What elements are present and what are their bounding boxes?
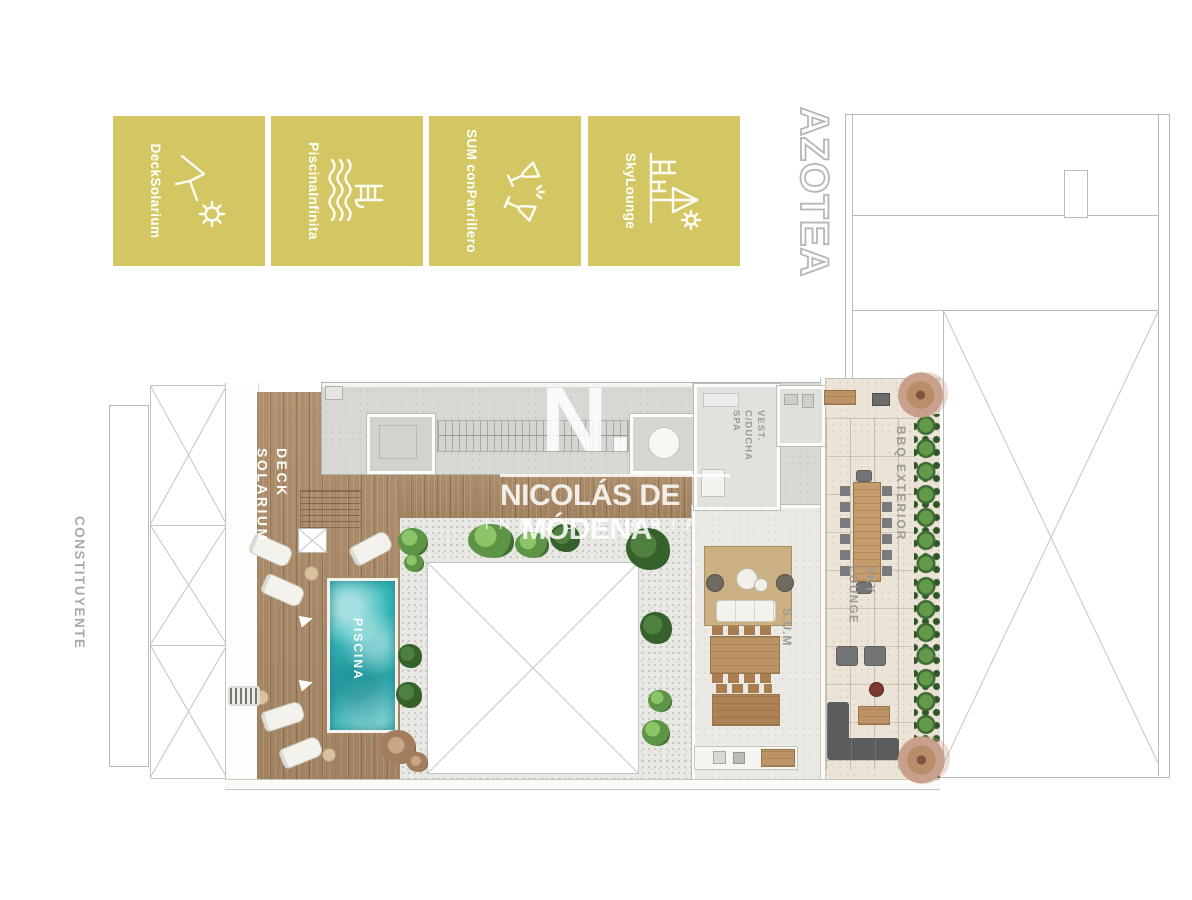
deck-solarium-label: DECKSOLARIUM — [252, 448, 291, 543]
coffee-table — [858, 706, 890, 725]
armchair — [776, 574, 794, 592]
bbq-chair — [856, 470, 872, 482]
plant — [648, 690, 672, 712]
side-walkway — [225, 383, 259, 782]
amenity-badge-label: DeckSolarium — [146, 144, 163, 239]
table-chairs — [716, 684, 772, 693]
brand-monogram: N. — [541, 374, 633, 466]
deck-stairs — [300, 490, 362, 528]
brand-tagline: INMOBILIARIA — [440, 516, 740, 533]
dry-plant — [406, 752, 428, 772]
neighbor-outline — [109, 405, 149, 767]
stove — [733, 752, 745, 764]
wc-room — [777, 386, 825, 446]
round-table — [754, 578, 768, 592]
cabinet — [761, 749, 795, 767]
side-table — [322, 748, 336, 762]
sky-lounge-label: SKYLOUNGE — [843, 566, 878, 624]
spa-tub — [648, 427, 680, 459]
plant — [396, 682, 422, 708]
elevator-car — [379, 425, 417, 459]
vestuario-label: VEST.C/DUCHASPA — [729, 410, 766, 461]
parasol-deck-icon — [645, 148, 707, 234]
floor-title: AZOTEA — [791, 107, 836, 307]
fire-table — [869, 682, 884, 697]
grill — [872, 393, 890, 406]
amenity-badge-label: PiscinaInfinita — [304, 142, 321, 240]
kitchen-counter — [694, 746, 798, 770]
sink — [713, 751, 726, 764]
toilet — [802, 394, 814, 408]
rooftop-plan-page: DeckSolarium PiscinaInfinita — [0, 0, 1192, 900]
second-table — [712, 694, 780, 726]
cheers-glasses-icon — [486, 148, 548, 234]
sum-label: S.U.M — [780, 608, 794, 646]
brand-name: NICOLÁS DE MÓDENA® — [440, 479, 740, 547]
floor-grate — [228, 686, 260, 706]
corner-sofa — [827, 738, 899, 760]
terrace-divider — [853, 215, 1158, 216]
hedge-planter — [914, 414, 940, 778]
duct-shaft — [325, 386, 343, 400]
dining-chairs — [712, 674, 776, 683]
elevator-shaft — [367, 414, 435, 474]
pool-label: PISCINA — [351, 618, 365, 681]
plan-bottom-wall — [225, 779, 940, 790]
roof-panels-cross — [150, 385, 228, 779]
spa-room — [630, 414, 698, 474]
open-roof-cross — [943, 310, 1159, 765]
plant — [640, 612, 672, 644]
skylight-void — [427, 562, 639, 774]
lounge-armchair — [864, 646, 886, 666]
infinity-pool-icon — [328, 148, 390, 234]
street-label: CONSTITUYENTE — [72, 516, 87, 650]
dining-table — [710, 636, 780, 674]
sun-lounger-icon — [170, 148, 232, 234]
armchair — [706, 574, 724, 592]
plant — [398, 528, 428, 556]
sink — [784, 394, 798, 405]
amenity-badge-sky-lounge: SkyLounge — [588, 116, 740, 266]
bbq-chairs-left — [840, 486, 850, 578]
amenity-badge-label: SUM conParrillero — [462, 129, 479, 253]
amenity-badge-deck-solarium: DeckSolarium — [113, 116, 265, 266]
brand-rule — [500, 474, 730, 477]
amenity-badge-sum-parrillero: SUM conParrillero — [429, 116, 581, 266]
amenity-badge-piscina-infinita: PiscinaInfinita — [271, 116, 423, 266]
bench — [703, 393, 739, 407]
bbq-exterior-label: BBQ EXTERIOR — [894, 426, 908, 541]
plant — [642, 720, 670, 746]
lounge-armchair — [836, 646, 858, 666]
side-table — [304, 566, 319, 581]
plant — [398, 644, 422, 668]
amenity-badge-label: SkyLounge — [621, 153, 638, 229]
dining-chairs — [712, 626, 776, 635]
shaft-outline — [1064, 170, 1088, 218]
plant — [404, 554, 424, 572]
planter-box — [298, 528, 327, 553]
bbq-counter — [824, 390, 856, 405]
bbq-chairs-right — [882, 486, 892, 578]
sofa — [716, 600, 776, 622]
